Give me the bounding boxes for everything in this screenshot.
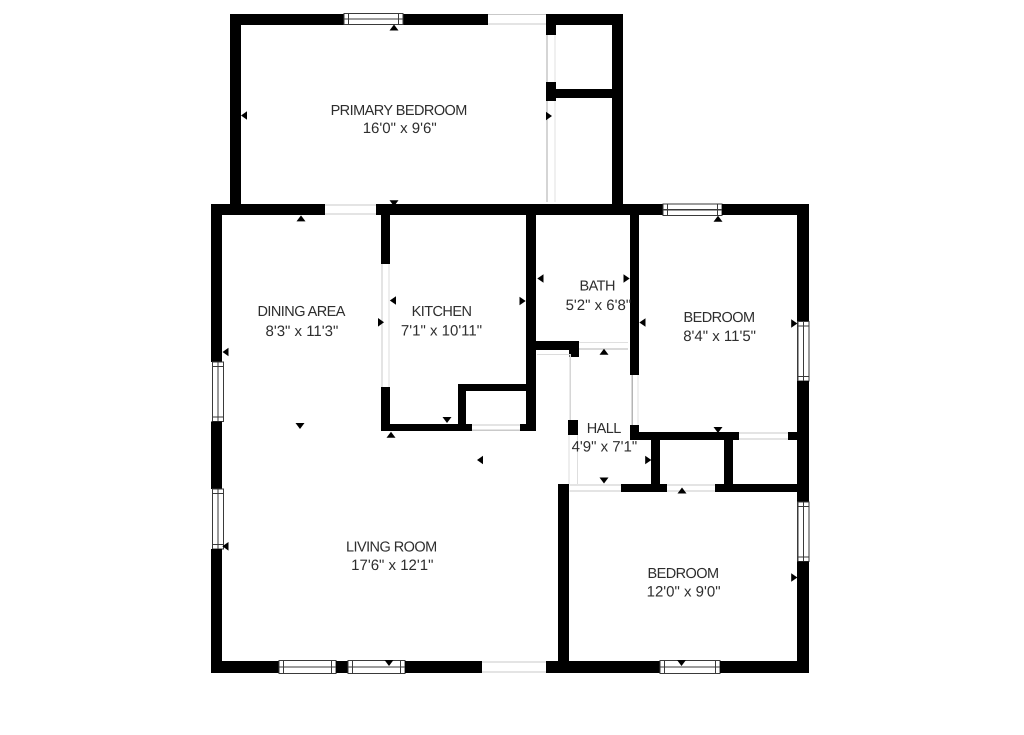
svg-text:16'0" x 9'6": 16'0" x 9'6" bbox=[363, 120, 437, 137]
svg-text:7'1" x 10'11": 7'1" x 10'11" bbox=[401, 322, 482, 339]
svg-text:8'3" x 11'3": 8'3" x 11'3" bbox=[265, 323, 338, 340]
svg-text:HALL: HALL bbox=[587, 421, 622, 437]
svg-text:LIVING ROOM: LIVING ROOM bbox=[346, 540, 437, 556]
svg-text:PRIMARY BEDROOM: PRIMARY BEDROOM bbox=[331, 103, 467, 119]
svg-text:DINING AREA: DINING AREA bbox=[257, 304, 345, 320]
svg-text:12'0" x 9'0": 12'0" x 9'0" bbox=[647, 583, 721, 600]
svg-text:KITCHEN: KITCHEN bbox=[412, 304, 472, 320]
svg-text:5'2" x 6'8": 5'2" x 6'8" bbox=[566, 297, 632, 314]
svg-text:BATH: BATH bbox=[579, 279, 614, 295]
svg-text:4'9" x 7'1": 4'9" x 7'1" bbox=[572, 438, 638, 455]
svg-text:8'4" x 11'5": 8'4" x 11'5" bbox=[683, 328, 756, 345]
svg-text:17'6" x 12'1": 17'6" x 12'1" bbox=[351, 557, 433, 574]
svg-text:BEDROOM: BEDROOM bbox=[647, 566, 718, 582]
svg-text:BEDROOM: BEDROOM bbox=[683, 310, 754, 326]
